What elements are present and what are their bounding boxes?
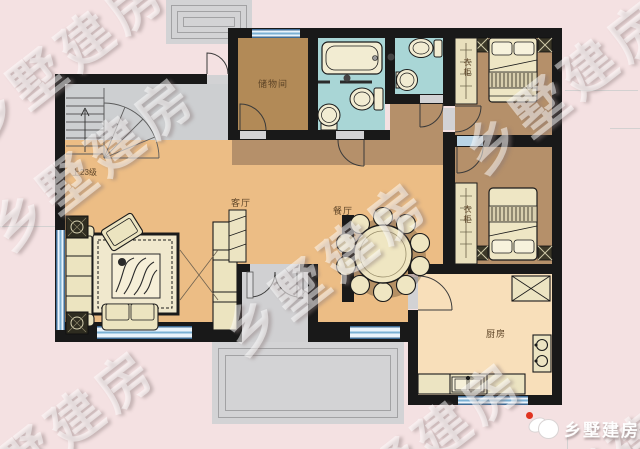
wall — [232, 264, 250, 272]
wall — [232, 264, 242, 342]
bedroom1-floor — [455, 38, 552, 135]
door-opening — [240, 131, 266, 139]
window — [252, 29, 300, 38]
door-top-entry — [207, 53, 228, 74]
red-dot-icon — [526, 412, 533, 419]
brand-name: 乡墅建房 — [564, 416, 640, 441]
entrance-alcove-floor — [242, 264, 308, 342]
dimension-line — [0, 226, 55, 227]
wall — [228, 28, 238, 140]
window — [458, 396, 528, 405]
corridor-floor — [232, 140, 443, 165]
wall — [308, 264, 318, 342]
window — [350, 326, 400, 339]
bathroom1-floor — [318, 38, 385, 130]
wall — [342, 215, 354, 302]
door-opening — [443, 108, 455, 130]
wall — [385, 28, 395, 104]
front-porch-steps — [212, 342, 404, 424]
bathroom2-floor — [395, 38, 443, 94]
wall — [55, 74, 207, 84]
wall — [408, 264, 562, 274]
wall — [300, 264, 318, 272]
wall — [552, 28, 562, 405]
door-opening — [336, 131, 364, 139]
window — [97, 326, 192, 339]
door-opening — [457, 136, 483, 146]
brand-logo: 乡墅建房 — [518, 406, 640, 446]
bedroom2-floor — [455, 147, 552, 264]
door-opening — [408, 277, 418, 309]
dimension-line — [610, 128, 640, 129]
mascot-icon — [538, 419, 559, 439]
bath-lobby-floor — [390, 104, 443, 140]
watermark-text: 乡墅建房 — [0, 326, 172, 449]
kitchen-floor — [418, 274, 552, 395]
storage-room-floor — [238, 38, 308, 130]
wall — [443, 147, 455, 264]
floor-plan-canvas: 储物间 客厅 餐厅 厨房 上23级 衣柜 衣柜 乡墅建房 乡墅建房 乡墅建房 乡… — [0, 0, 640, 449]
dimension-line — [565, 90, 638, 91]
wall — [308, 28, 318, 140]
window — [56, 230, 65, 330]
door-opening — [207, 75, 228, 84]
door-opening — [420, 95, 443, 103]
